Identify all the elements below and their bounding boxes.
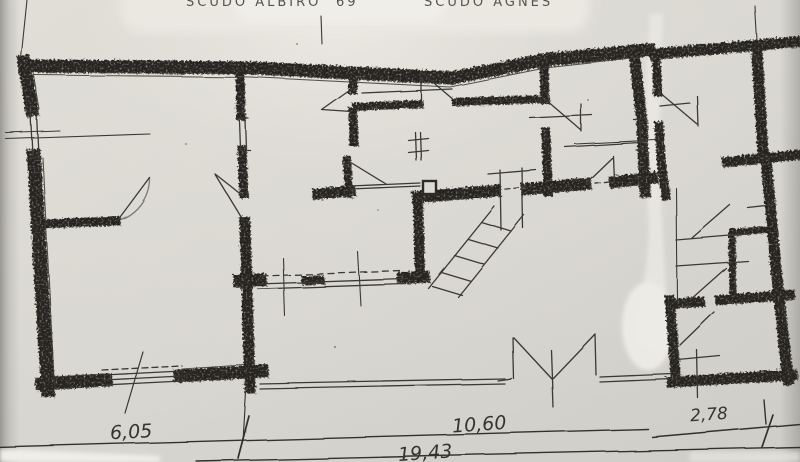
title-fragment-number: 69 [336, 0, 359, 10]
dimension-right-label: 2,78 [689, 404, 728, 427]
right-edge-shadow [780, 0, 800, 462]
wall-central-h2 [456, 99, 546, 102]
floorplan-drawing: SCUDO ALBIRO 69 SCUDO AGNES 6,05 10,60 2… [0, 0, 800, 462]
wall-central-d [318, 191, 350, 194]
annex-wall-h300-a [672, 302, 700, 304]
annex-wall-left-a [656, 56, 658, 92]
wall-central-h1 [356, 104, 420, 107]
annex-wall-left-lower [670, 300, 676, 382]
dimension-left-label: 6,05 [109, 420, 152, 444]
wall-middle-c [615, 178, 652, 182]
wall-545-a [544, 58, 545, 100]
floorplan-scan: SCUDO ALBIRO 69 SCUDO AGNES 6,05 10,60 2… [0, 0, 800, 462]
wall-bottom-left-a [42, 380, 106, 384]
wall-middle-b [527, 184, 585, 189]
dimension-middle-label: 10,60 [451, 412, 507, 438]
annex-wall-left-b [659, 126, 662, 170]
title-fragment-left: SCUDO ALBIRO [186, 0, 321, 10]
wall-left-upper [24, 62, 32, 110]
annex-wall-mid-vert [757, 50, 763, 154]
wall-central-b [353, 112, 354, 142]
bottom-right-light-edge [690, 452, 800, 462]
left-edge-shadow [0, 0, 20, 462]
tear-white-patch [622, 282, 674, 370]
wall-545-b [546, 132, 548, 192]
dimension-total-label: 19,43 [397, 440, 453, 462]
wall-interior-left [42, 221, 116, 224]
annex-wall-bottom [672, 375, 792, 382]
wall-divider-240-c [245, 222, 250, 388]
annex-wall-left-c [663, 174, 666, 196]
annex-wall-h230 [738, 229, 772, 232]
wall-porch-vert [418, 199, 420, 274]
wall-porch-corner [403, 277, 424, 278]
title-fragment-right: SCUDO AGNES [424, 0, 553, 10]
wall-porch-end [240, 280, 260, 281]
annex-wall-733 [732, 232, 733, 299]
wall-porch-block [306, 280, 320, 281]
pillar-block [423, 181, 436, 194]
wall-divider-240-b [242, 150, 244, 194]
